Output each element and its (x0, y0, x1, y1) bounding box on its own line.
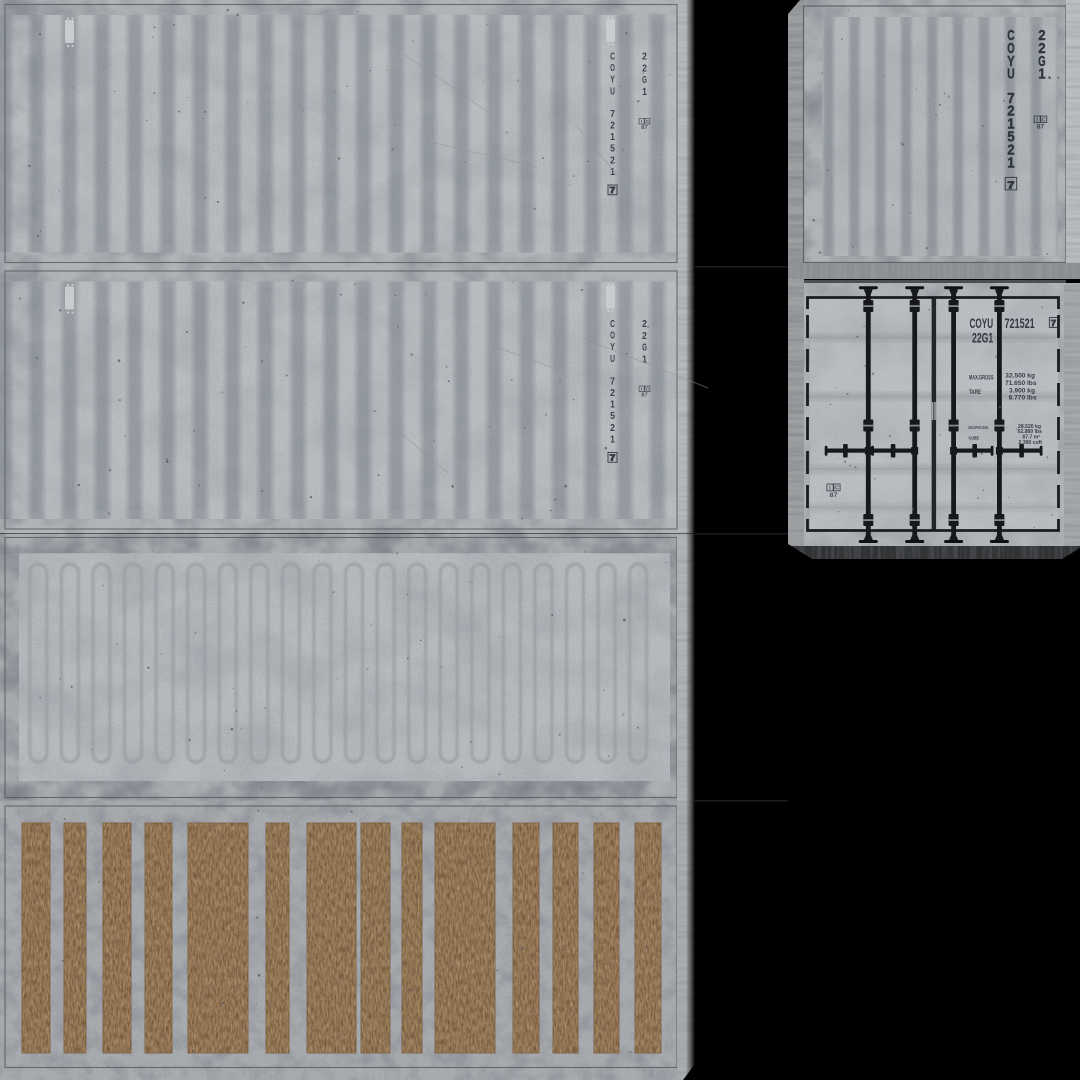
svg-text:2: 2 (610, 155, 615, 166)
svg-text:MAX.PAYLOAD: MAX.PAYLOAD (969, 425, 989, 430)
svg-text:7: 7 (1051, 318, 1056, 328)
svg-text:Y: Y (610, 75, 615, 86)
svg-text:87: 87 (830, 492, 838, 499)
svg-text:Y: Y (610, 342, 615, 353)
svg-text:2: 2 (642, 331, 647, 342)
svg-text:1: 1 (1038, 67, 1045, 83)
svg-text:87: 87 (641, 125, 648, 131)
svg-text:C: C (1042, 117, 1046, 123)
svg-text:1: 1 (610, 434, 615, 445)
svg-text:7: 7 (1007, 179, 1014, 191)
svg-text:2: 2 (610, 388, 615, 399)
svg-text:87: 87 (1037, 125, 1045, 131)
svg-text:MAX.GROSS: MAX.GROSS (969, 375, 994, 382)
svg-text:7: 7 (610, 109, 615, 120)
svg-text:2: 2 (610, 423, 615, 434)
svg-text:7: 7 (610, 186, 616, 195)
svg-text:2: 2 (610, 121, 615, 132)
svg-text:32.500 kg: 32.500 kg (1005, 373, 1035, 380)
svg-text:C: C (646, 387, 650, 393)
svg-text:2.390 cuft: 2.390 cuft (1019, 440, 1043, 446)
svg-text:1: 1 (642, 87, 647, 98)
svg-text:22G1: 22G1 (972, 331, 993, 347)
svg-text:8.770 lbs: 8.770 lbs (1009, 395, 1037, 402)
svg-text:U: U (1007, 67, 1014, 83)
svg-text:G: G (642, 343, 647, 354)
svg-text:G: G (642, 75, 647, 86)
svg-text:7: 7 (610, 454, 616, 463)
svg-text:O: O (610, 331, 615, 342)
svg-text:C: C (646, 119, 650, 125)
svg-text:1: 1 (610, 400, 615, 411)
svg-text:C: C (610, 52, 615, 63)
svg-text:O: O (610, 63, 615, 74)
svg-text:CUBE: CUBE (969, 436, 980, 441)
svg-text:5: 5 (610, 411, 615, 422)
svg-text:1: 1 (610, 132, 615, 143)
svg-text:C: C (835, 486, 840, 492)
svg-text:87: 87 (641, 393, 648, 399)
svg-text:3.900 kg: 3.900 kg (1009, 387, 1035, 394)
svg-text:7: 7 (610, 376, 615, 387)
svg-text:U: U (610, 86, 615, 97)
svg-text:C: C (610, 319, 615, 330)
svg-text:TARE: TARE (969, 389, 981, 396)
svg-text:5: 5 (610, 144, 615, 155)
svg-text:2: 2 (642, 319, 647, 330)
svg-text:721521: 721521 (1005, 316, 1035, 332)
svg-text:2: 2 (642, 52, 647, 63)
svg-text:71.650 lbs: 71.650 lbs (1005, 380, 1037, 387)
svg-text:U: U (610, 354, 615, 365)
svg-text:1: 1 (1007, 155, 1014, 171)
